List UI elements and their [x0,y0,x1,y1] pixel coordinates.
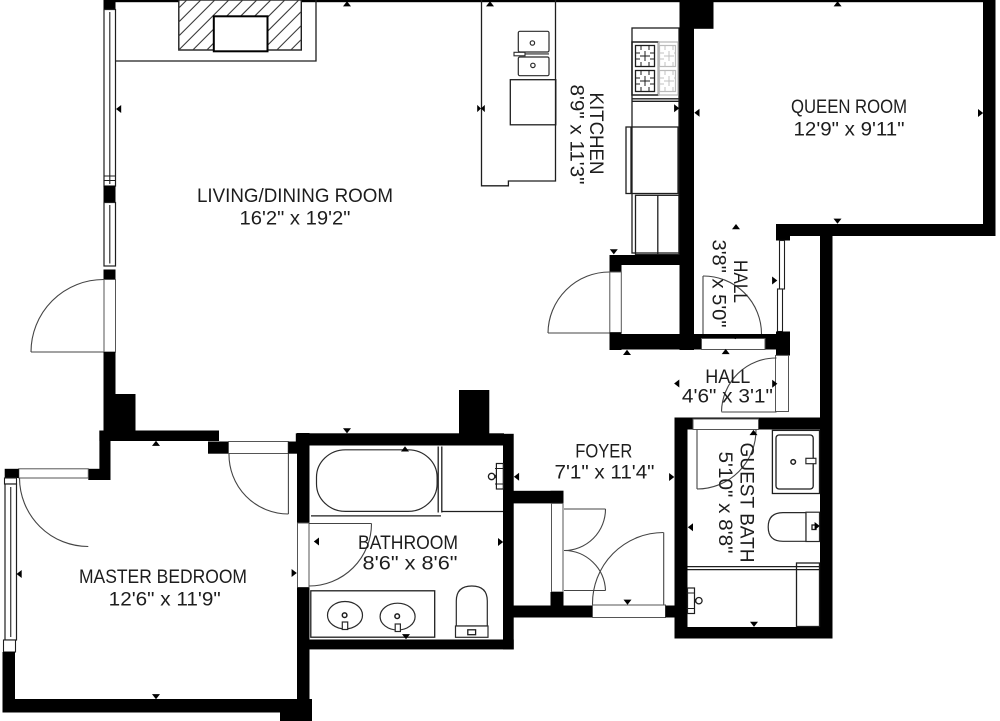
svg-text:GUEST BATH: GUEST BATH [736,443,758,563]
svg-text:MASTER BEDROOM: MASTER BEDROOM [79,566,247,588]
svg-text:12'6" x 11'9": 12'6" x 11'9" [109,589,221,611]
svg-text:BATHROOM: BATHROOM [358,532,458,554]
svg-text:FOYER: FOYER [575,441,632,463]
svg-text:8'9" x 11'3": 8'9" x 11'3" [566,85,588,185]
svg-text:8'6" x 8'6": 8'6" x 8'6" [363,553,458,575]
svg-text:7'1" x 11'4": 7'1" x 11'4" [555,462,655,484]
svg-text:HALL: HALL [729,260,751,303]
svg-text:12'9" x 9'11": 12'9" x 9'11" [794,119,905,141]
svg-text:4'6" x 3'1": 4'6" x 3'1" [682,386,773,408]
svg-text:QUEEN ROOM: QUEEN ROOM [791,96,907,118]
svg-text:LIVING/DINING ROOM: LIVING/DINING ROOM [197,185,393,207]
svg-text:16'2" x 19'2": 16'2" x 19'2" [240,208,351,230]
svg-text:3'8" x 5'0": 3'8" x 5'0" [708,240,730,328]
svg-text:5'10" x 8'8": 5'10" x 8'8" [714,452,736,554]
